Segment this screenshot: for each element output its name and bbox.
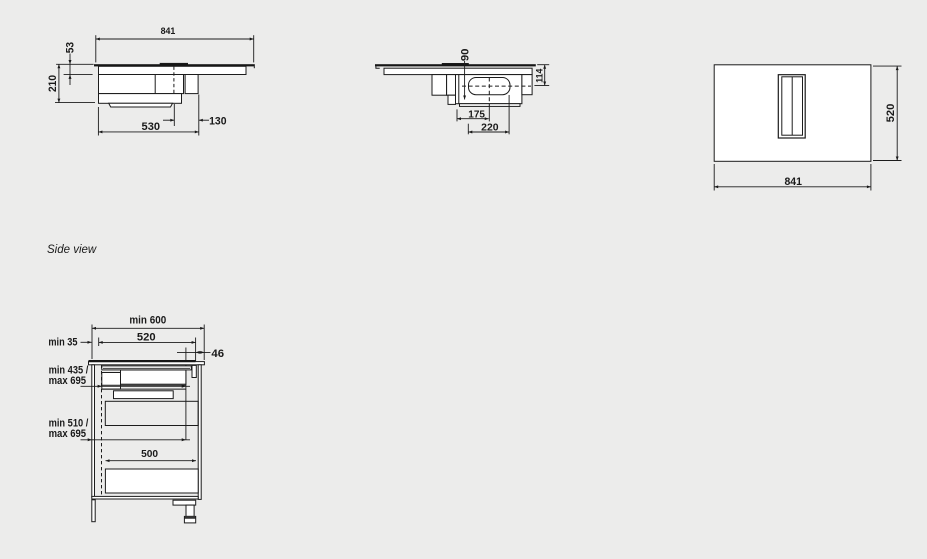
svg-text:53: 53 <box>64 42 76 53</box>
svg-text:90: 90 <box>459 49 471 62</box>
svg-text:175: 175 <box>468 110 485 121</box>
svg-text:530: 530 <box>142 121 161 133</box>
svg-text:Side view: Side view <box>47 244 97 256</box>
svg-text:841: 841 <box>784 176 802 188</box>
svg-text:520: 520 <box>885 104 897 123</box>
svg-text:130: 130 <box>209 116 226 128</box>
svg-text:220: 220 <box>481 123 499 134</box>
svg-text:841: 841 <box>161 26 176 36</box>
svg-text:46: 46 <box>211 348 224 360</box>
svg-text:min 600: min 600 <box>129 315 166 327</box>
svg-text:500: 500 <box>141 449 158 460</box>
svg-text:520: 520 <box>137 331 156 343</box>
svg-text:114: 114 <box>535 69 545 83</box>
svg-text:max 695: max 695 <box>49 375 87 387</box>
svg-text:210: 210 <box>47 75 59 92</box>
svg-text:min 35: min 35 <box>48 336 77 348</box>
svg-text:max 695: max 695 <box>49 428 87 440</box>
